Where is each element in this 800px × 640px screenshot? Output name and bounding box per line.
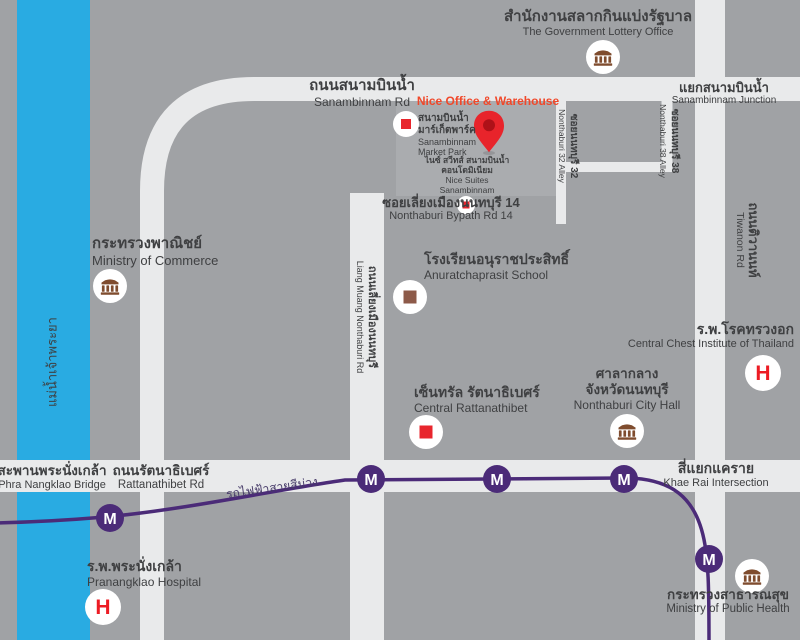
soi38-en: Nonthaburi 38 Alley — [658, 104, 668, 178]
metro-m-letter: M — [702, 552, 715, 569]
junction-label-khae-rai: สี่แยกแคราย Khae Rai Intersection — [663, 460, 768, 489]
moph-en: Ministry of Public Health — [666, 603, 789, 617]
market-park-th1: สนามบินน้ำ — [418, 113, 476, 125]
junction-label-bridge: สะพานพระนั่งเกล้า Phra Nangklao Bridge — [0, 463, 107, 492]
poi-label-chest-institute: ร.พ.โรคทรวงอก Central Chest Institute of… — [628, 321, 794, 350]
road-label-soi32: ซอยนนทบุรี 32 Nonthaburi 32 Alley — [557, 109, 579, 183]
map: M M M M M — [0, 0, 800, 640]
poi-label-school: โรงเรียนอนุราชประสิทธิ์ Anuratchaprasit … — [424, 251, 569, 282]
market-park-th2: มาร์เก็ตพาร์ค — [418, 125, 476, 137]
khae-rai-en: Khae Rai Intersection — [663, 477, 768, 490]
lottery-name-en: The Government Lottery Office — [504, 26, 692, 39]
sanambinnam-rd-en: Sanambinnam Rd — [309, 95, 415, 109]
road-label-bypath: ซอยเลี่ยงเมืองนนทบุรี 14 Nonthaburi Bypa… — [382, 195, 519, 223]
nice-suites-th1: ไนซ์ สวีทส์ สนามบินน้ำ — [425, 155, 510, 165]
poi-label-pranangklao: ร.พ.พระนั่งเกล้า Pranangklao Hospital — [87, 558, 201, 589]
nice-suites-en1: Nice Suites — [425, 175, 510, 185]
road-label-rattanathibet: ถนนรัตนาธิเบศร์ Rattanathibet Rd — [113, 463, 210, 492]
metro-m-letter: M — [103, 511, 116, 528]
road-label-soi38: ซอยนนทบุรี 38 Nonthaburi 38 Alley — [658, 104, 680, 178]
metro-station-icon: M — [96, 504, 124, 532]
metro-m-letter: M — [617, 472, 630, 489]
school-icon — [393, 280, 427, 314]
pranangklao-th: ร.พ.พระนั่งเกล้า — [87, 558, 201, 575]
mall-icon — [393, 111, 419, 137]
government-building-icon — [610, 414, 644, 448]
lottery-name-th: สำนักงานสลากกินแบ่งรัฐบาล — [504, 8, 692, 26]
nice-suites-th2: คอนโดมิเนียม — [425, 165, 510, 175]
market-park-en1: Sanambinnam — [418, 137, 476, 148]
highlight-label-nice-office-warehouse: Nice Office & Warehouse — [417, 94, 559, 108]
commerce-en: Ministry of Commerce — [92, 253, 218, 268]
government-building-icon — [586, 40, 620, 74]
bypath-th: ซอยเลี่ยงเมืองนนทบุรี 14 — [382, 195, 519, 210]
hospital-h-letter: H — [755, 362, 770, 385]
rattanathibet-en: Rattanathibet Rd — [113, 479, 210, 493]
nice-suites-en2: Sanambinnam — [425, 185, 510, 195]
poi-label-central: เซ็นทรัล รัตนาธิเบศร์ Central Rattanathi… — [414, 384, 540, 415]
poi-label-moph: กระทรวงสาธารณสุข Ministry of Public Heal… — [666, 587, 789, 616]
rattanathibet-th: ถนนรัตนาธิเบศร์ — [113, 463, 210, 479]
government-building-icon — [93, 269, 127, 303]
metro-m-letter: M — [490, 472, 503, 489]
moph-th: กระทรวงสาธารณสุข — [666, 587, 789, 603]
school-th: โรงเรียนอนุราชประสิทธิ์ — [424, 251, 569, 268]
city-hall-en: Nonthaburi City Hall — [574, 398, 681, 412]
sanambinnam-rd-th: ถนนสนามบินน้ำ — [309, 77, 415, 95]
soi32-en: Nonthaburi 32 Alley — [557, 109, 567, 183]
tiwanon-th: ถนนติวานนท์ — [746, 202, 761, 277]
tiwanon-en: Tiwanon Rd — [733, 202, 745, 277]
city-hall-th2: จังหวัดนนทบุรี — [574, 382, 681, 398]
soi32-th: ซอยนนทบุรี 32 — [567, 109, 579, 183]
poi-label-city-hall: ศาลากลาง จังหวัดนนทบุรี Nonthaburi City … — [574, 366, 681, 412]
metro-station-icon: M — [357, 465, 385, 493]
mall-icon — [409, 415, 443, 449]
khae-rai-th: สี่แยกแคราย — [663, 460, 768, 477]
metro-station-icon: M — [695, 545, 723, 573]
metro-m-letter: M — [364, 472, 377, 489]
bypath-en: Nonthaburi Bypath Rd 14 — [382, 210, 519, 223]
liang-muang-th: ถนนเลี่ยงเมืองนนทบุรี — [365, 261, 378, 374]
metro-station-icon: M — [610, 465, 638, 493]
poi-label-lottery: สำนักงานสลากกินแบ่งรัฐบาล The Government… — [504, 8, 692, 39]
road-label-liang-muang: ถนนเลี่ยงเมืองนนทบุรี Liang Muang Nontha… — [354, 261, 378, 374]
central-en: Central Rattanathibet — [414, 401, 540, 415]
city-hall-th1: ศาลากลาง — [574, 366, 681, 382]
soi38-th: ซอยนนทบุรี 38 — [668, 104, 680, 178]
bridge-en: Phra Nangklao Bridge — [0, 479, 107, 492]
poi-label-commerce: กระทรวงพาณิชย์ Ministry of Commerce — [92, 235, 218, 268]
chest-th: ร.พ.โรคทรวงอก — [628, 321, 794, 338]
road-label-sanambinnam: ถนนสนามบินน้ำ Sanambinnam Rd — [309, 77, 415, 109]
central-th: เซ็นทรัล รัตนาธิเบศร์ — [414, 384, 540, 401]
pranangklao-en: Pranangklao Hospital — [87, 575, 201, 589]
river-label: แม่น้ำเจ้าพระยา — [44, 317, 59, 407]
school-en: Anuratchaprasit School — [424, 268, 569, 282]
junction-label-sanambinnam: แยกสนามบินน้ำ Sanambinnam Junction — [672, 80, 777, 107]
bridge-th: สะพานพระนั่งเกล้า — [0, 463, 107, 479]
poi-label-market-park: สนามบินน้ำ มาร์เก็ตพาร์ค Sanambinnam Mar… — [418, 113, 476, 158]
poi-label-nice-suites: ไนซ์ สวีทส์ สนามบินน้ำ คอนโดมิเนียม Nice… — [425, 155, 510, 195]
road-label-tiwanon: ถนนติวานนท์ Tiwanon Rd — [733, 202, 761, 277]
sanambinnam-junction-th: แยกสนามบินน้ำ — [672, 80, 777, 95]
sanambinnam-junction-en: Sanambinnam Junction — [672, 95, 777, 107]
commerce-th: กระทรวงพาณิชย์ — [92, 235, 218, 253]
chest-en: Central Chest Institute of Thailand — [628, 338, 794, 351]
liang-muang-en: Liang Muang Nonthaburi Rd — [354, 261, 365, 374]
hospital-icon: H — [745, 355, 781, 391]
metro-station-icon: M — [483, 465, 511, 493]
hospital-icon: H — [85, 589, 121, 625]
hospital-h-letter: H — [95, 596, 110, 619]
